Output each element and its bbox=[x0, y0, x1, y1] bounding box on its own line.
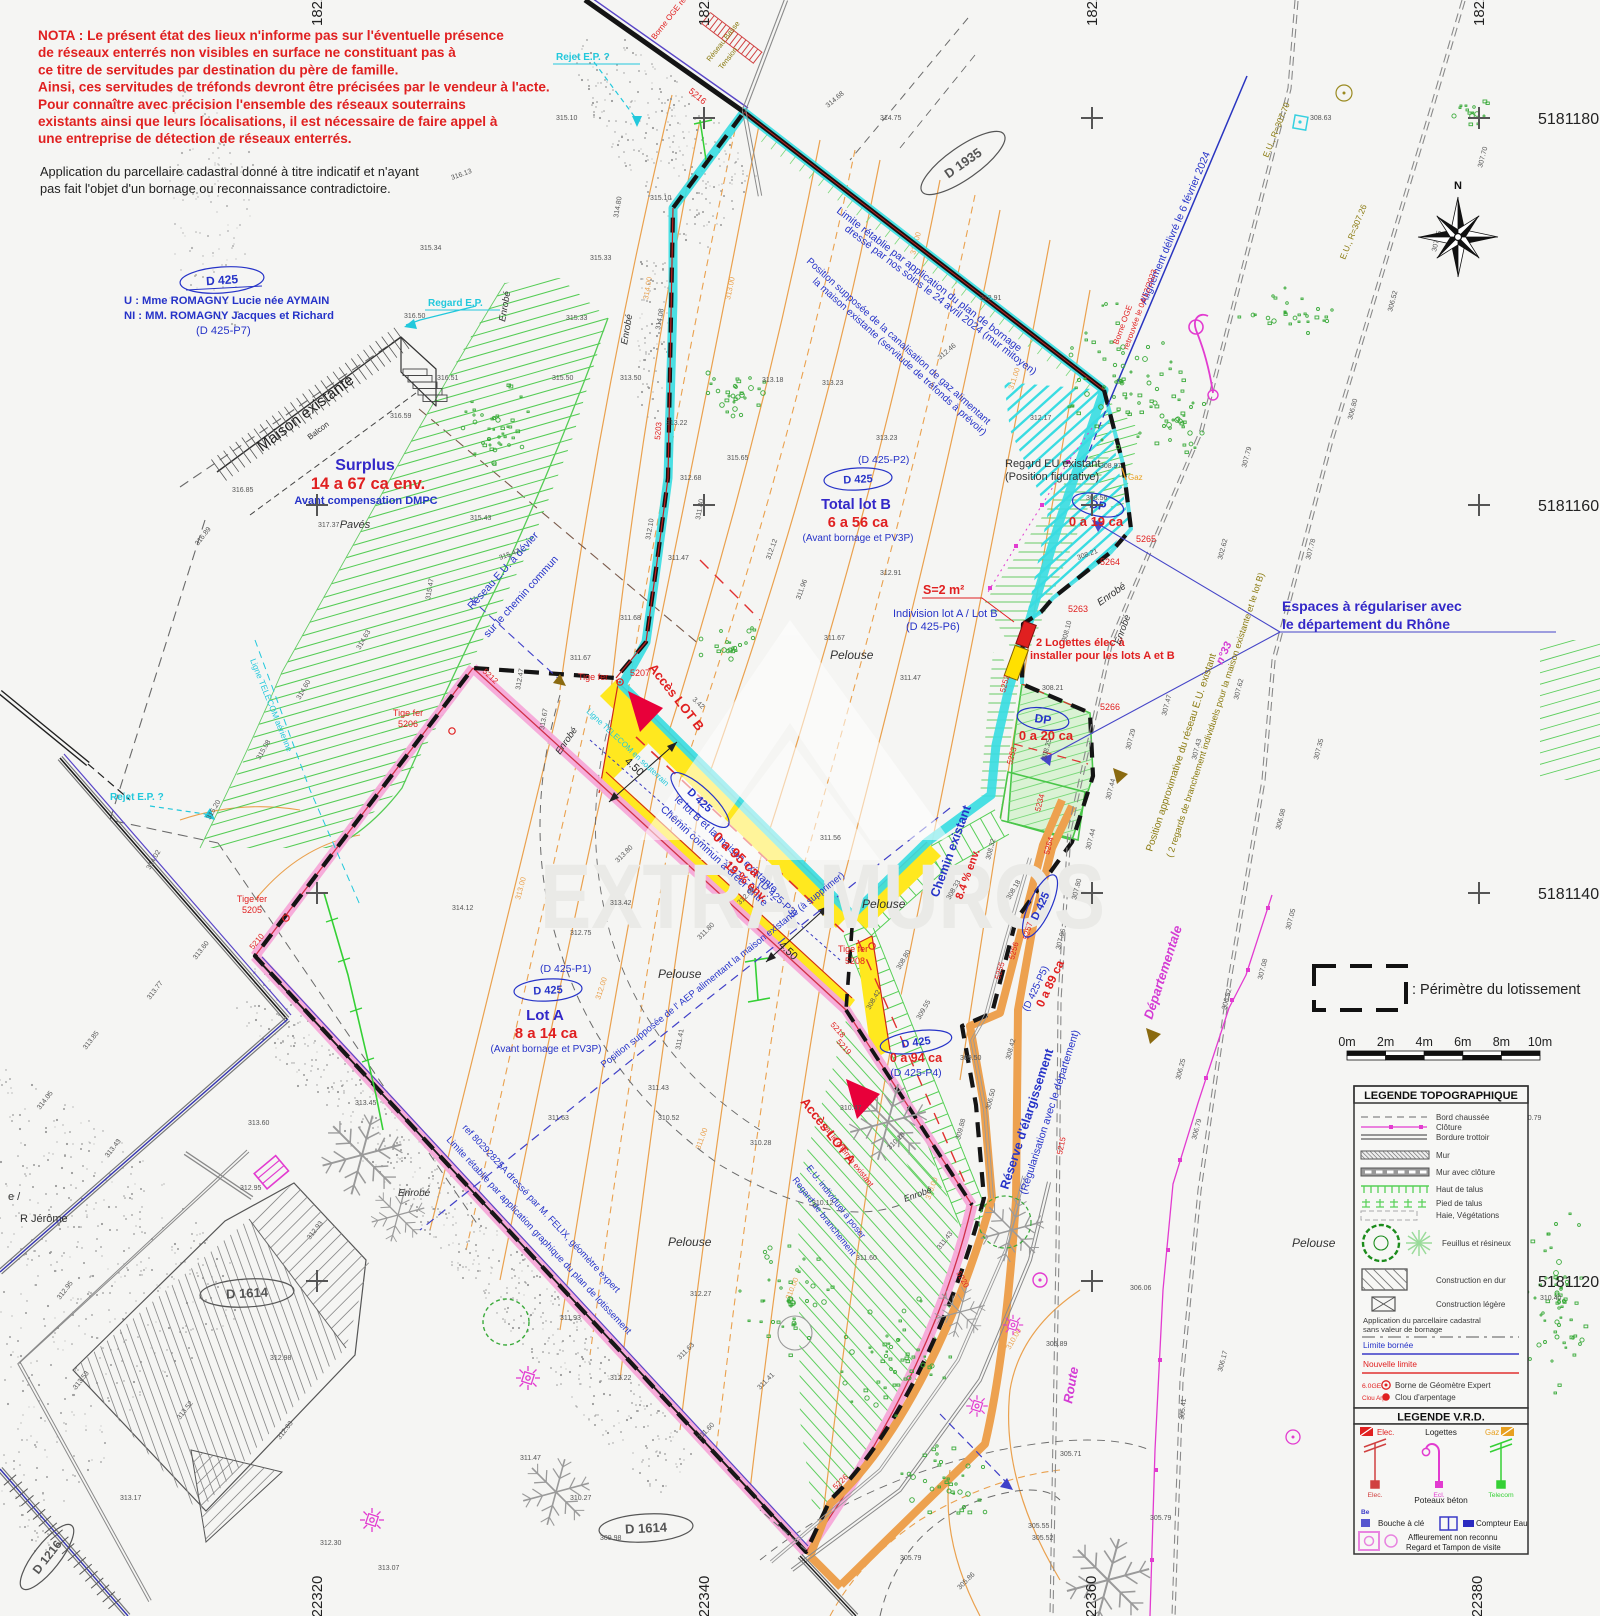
svg-text:315.33: 315.33 bbox=[566, 315, 588, 322]
svg-text:315.50: 315.50 bbox=[552, 375, 574, 382]
svg-text:Tige fer: Tige fer bbox=[237, 894, 267, 904]
svg-text:2m: 2m bbox=[1377, 1035, 1394, 1049]
svg-text:1822380: 1822380 bbox=[1469, 1576, 1486, 1616]
svg-text:Ainsi, ces servitudes de tréfo: Ainsi, ces servitudes de tréfonds devron… bbox=[38, 80, 550, 95]
svg-text:5263: 5263 bbox=[1068, 604, 1088, 614]
svg-text:312.22: 312.22 bbox=[610, 1375, 632, 1382]
svg-text:317.37: 317.37 bbox=[318, 522, 340, 529]
svg-text:existants ainsi que leurs loca: existants ainsi que leurs localisations,… bbox=[38, 114, 498, 129]
svg-text:6.0GE: 6.0GE bbox=[1362, 1383, 1382, 1390]
svg-text:305.52: 305.52 bbox=[1032, 1535, 1054, 1542]
svg-text:Clôture: Clôture bbox=[1436, 1123, 1462, 1132]
svg-text:NOTA : Le présent état des lie: NOTA : Le présent état des lieux n'infor… bbox=[38, 28, 504, 43]
svg-text:0 a 94 ca: 0 a 94 ca bbox=[890, 1051, 943, 1065]
svg-text:Surplus: Surplus bbox=[335, 457, 395, 474]
svg-text:1822340: 1822340 bbox=[696, 1576, 713, 1616]
svg-text:(Avant bornage et PV3P): (Avant bornage et PV3P) bbox=[803, 533, 914, 544]
svg-text:Clou d'arpentage: Clou d'arpentage bbox=[1395, 1393, 1456, 1402]
svg-text:312.95: 312.95 bbox=[240, 1185, 262, 1192]
svg-text:N: N bbox=[1454, 180, 1462, 192]
svg-text:313.07: 313.07 bbox=[378, 1565, 400, 1572]
svg-text:(D 425-P7): (D 425-P7) bbox=[196, 325, 251, 337]
svg-text:306.06: 306.06 bbox=[1130, 1285, 1152, 1292]
svg-text:1822340: 1822340 bbox=[696, 0, 713, 26]
svg-text:Borne de Géomètre Expert: Borne de Géomètre Expert bbox=[1395, 1381, 1491, 1390]
svg-text:309.50: 309.50 bbox=[960, 1055, 982, 1062]
svg-text:5205: 5205 bbox=[242, 905, 262, 915]
svg-text:Gaz: Gaz bbox=[1485, 1428, 1499, 1437]
svg-text:Feuillus et résineux: Feuillus et résineux bbox=[1442, 1239, 1511, 1248]
svg-text:Lot A: Lot A bbox=[526, 1007, 564, 1024]
svg-text:312.27: 312.27 bbox=[690, 1291, 712, 1298]
svg-text:5207: 5207 bbox=[630, 668, 650, 678]
svg-text:de réseaux enterrés non visibl: de réseaux enterrés non visibles en surf… bbox=[38, 45, 456, 60]
svg-text:Compteur Eau: Compteur Eau bbox=[1476, 1519, 1528, 1528]
svg-text:1822380: 1822380 bbox=[1471, 0, 1488, 26]
svg-text:Espaces à régulariser avec: Espaces à régulariser avec bbox=[1282, 598, 1462, 614]
svg-text:311.47: 311.47 bbox=[668, 555, 689, 562]
svg-text:5181160: 5181160 bbox=[1538, 498, 1599, 515]
svg-text:8 a 14 ca: 8 a 14 ca bbox=[515, 1025, 578, 1042]
svg-text:311.56: 311.56 bbox=[820, 835, 841, 842]
svg-text:NI : MM. ROMAGNY Jacques et Ri: NI : MM. ROMAGNY Jacques et Richard bbox=[124, 310, 334, 322]
svg-text:0m: 0m bbox=[1338, 1035, 1355, 1049]
svg-text:Logettes: Logettes bbox=[1425, 1427, 1457, 1437]
svg-text:312.98: 312.98 bbox=[270, 1355, 292, 1362]
svg-text:5181140: 5181140 bbox=[1538, 886, 1599, 903]
svg-text:D 1614: D 1614 bbox=[625, 1519, 668, 1536]
svg-text:D 425: D 425 bbox=[206, 272, 239, 288]
svg-text:5265: 5265 bbox=[1136, 534, 1156, 544]
svg-text:Telecom: Telecom bbox=[1488, 1492, 1514, 1499]
svg-text:Bord chaussée: Bord chaussée bbox=[1436, 1113, 1490, 1122]
svg-text:Pour connaître avec précision: Pour connaître avec précision l'ensemble… bbox=[38, 97, 466, 112]
svg-text:Enrobé: Enrobé bbox=[398, 1188, 431, 1199]
svg-text:Haut de talus: Haut de talus bbox=[1436, 1185, 1483, 1194]
svg-text:311.68: 311.68 bbox=[620, 615, 641, 622]
svg-text:308.56: 308.56 bbox=[1086, 495, 1108, 502]
svg-text:Tige fer: Tige fer bbox=[578, 672, 608, 682]
svg-text:5203: 5203 bbox=[653, 421, 664, 440]
svg-text:(D 425-P2): (D 425-P2) bbox=[858, 454, 909, 466]
svg-text:(Avant bornage et PV3P): (Avant bornage et PV3P) bbox=[491, 1044, 602, 1055]
svg-text:1822360: 1822360 bbox=[1084, 0, 1101, 26]
svg-text:4m: 4m bbox=[1416, 1035, 1433, 1049]
svg-text:1822360: 1822360 bbox=[1083, 1576, 1100, 1616]
svg-text:Pelouse: Pelouse bbox=[1292, 1236, 1336, 1250]
svg-text:305.55: 305.55 bbox=[1028, 1523, 1050, 1530]
svg-text:305.89: 305.89 bbox=[1046, 1341, 1068, 1348]
svg-text:305.71: 305.71 bbox=[1060, 1451, 1082, 1458]
svg-text:Pelouse: Pelouse bbox=[658, 967, 702, 981]
svg-text:1822320: 1822320 bbox=[309, 0, 326, 26]
svg-text:316.85: 316.85 bbox=[232, 487, 254, 494]
svg-text:U : Mme ROMAGNY Lucie née AYMA: U : Mme ROMAGNY Lucie née AYMAIN bbox=[124, 295, 329, 307]
svg-text:Affleurement non reconnu: Affleurement non reconnu bbox=[1408, 1533, 1498, 1542]
svg-text:311.67: 311.67 bbox=[824, 635, 845, 642]
svg-text:310.27: 310.27 bbox=[570, 1495, 592, 1502]
svg-text:10m: 10m bbox=[1528, 1035, 1552, 1049]
svg-text:310.28: 310.28 bbox=[750, 1140, 772, 1147]
svg-text:Gaz: Gaz bbox=[1128, 473, 1143, 482]
svg-text:Total lot B: Total lot B bbox=[821, 497, 891, 513]
svg-text:310.52: 310.52 bbox=[658, 1115, 680, 1122]
svg-text:Rejet E.P. ?: Rejet E.P. ? bbox=[556, 52, 610, 63]
svg-text:Application du parcellaire cad: Application du parcellaire cadastral don… bbox=[40, 164, 419, 179]
svg-text:313.60: 313.60 bbox=[248, 1120, 270, 1127]
svg-text:315.10: 315.10 bbox=[650, 195, 672, 202]
svg-text:ce titre de servitudes par des: ce titre de servitudes par destination d… bbox=[38, 62, 398, 77]
svg-text:8m: 8m bbox=[1493, 1035, 1510, 1049]
svg-text:(D 425-P6): (D 425-P6) bbox=[906, 621, 960, 633]
svg-text:313.45: 313.45 bbox=[355, 1100, 377, 1107]
svg-text:5206: 5206 bbox=[398, 719, 418, 729]
svg-text:310.12: 310.12 bbox=[812, 1200, 834, 1207]
svg-text:310.40: 310.40 bbox=[1540, 1295, 1562, 1302]
svg-text:Construction légère: Construction légère bbox=[1436, 1300, 1506, 1309]
svg-text:5181120: 5181120 bbox=[1538, 1274, 1599, 1291]
svg-text:311.47: 311.47 bbox=[900, 675, 921, 682]
svg-text:sans valeur de bornage: sans valeur de bornage bbox=[1363, 1325, 1442, 1334]
svg-text:313.23: 313.23 bbox=[822, 380, 844, 387]
svg-text:LEGENDE TOPOGRAPHIQUE: LEGENDE TOPOGRAPHIQUE bbox=[1364, 1090, 1518, 1102]
svg-text:313.17: 313.17 bbox=[120, 1495, 142, 1502]
svg-text:313.42: 313.42 bbox=[610, 900, 632, 907]
svg-text:312.68: 312.68 bbox=[680, 475, 702, 482]
svg-text:312.91: 312.91 bbox=[980, 295, 1002, 302]
svg-text:316.51: 316.51 bbox=[437, 375, 459, 382]
svg-text:311.47: 311.47 bbox=[520, 1455, 541, 1462]
svg-text:(D 425-P4): (D 425-P4) bbox=[890, 1067, 941, 1079]
svg-text:311.43: 311.43 bbox=[648, 1085, 669, 1092]
svg-text:: Périmètre du lotissement: : Périmètre du lotissement bbox=[1412, 982, 1580, 998]
svg-text:315.43: 315.43 bbox=[470, 515, 492, 522]
svg-text:0 a 19 ca: 0 a 19 ca bbox=[1069, 514, 1124, 529]
svg-text:une entreprise de détection de: une entreprise de détection de réseaux e… bbox=[38, 131, 352, 146]
svg-text:311.93: 311.93 bbox=[560, 1315, 581, 1322]
svg-text:316.59: 316.59 bbox=[390, 413, 412, 420]
svg-text:305.79: 305.79 bbox=[900, 1555, 922, 1562]
svg-text:Pelouse: Pelouse bbox=[862, 897, 906, 911]
svg-text:311.63: 311.63 bbox=[548, 1115, 569, 1122]
svg-text:5264: 5264 bbox=[1100, 557, 1120, 567]
svg-text:Application du parcellaire cad: Application du parcellaire cadastral bbox=[1363, 1316, 1481, 1325]
svg-text:D 425: D 425 bbox=[843, 473, 873, 487]
svg-text:Pavés: Pavés bbox=[340, 519, 371, 531]
svg-text:313.22: 313.22 bbox=[666, 420, 688, 427]
svg-text:5266: 5266 bbox=[1100, 702, 1120, 712]
svg-text:Regard EU existant: Regard EU existant bbox=[1005, 458, 1100, 470]
svg-text:Bordure trottoir: Bordure trottoir bbox=[1436, 1133, 1490, 1142]
svg-text:(D 425-P1): (D 425-P1) bbox=[540, 963, 591, 975]
svg-text:R Jérôme: R Jérôme bbox=[20, 1213, 68, 1225]
svg-text:Tige fer: Tige fer bbox=[838, 944, 868, 954]
svg-text:310.47: 310.47 bbox=[840, 1105, 862, 1112]
svg-text:315.10: 315.10 bbox=[556, 115, 578, 122]
svg-text:Nouvelle limite: Nouvelle limite bbox=[1363, 1359, 1417, 1369]
svg-text:6 a 56 ca: 6 a 56 ca bbox=[828, 515, 889, 531]
svg-text:312.17: 312.17 bbox=[1030, 415, 1052, 422]
svg-text:314.12: 314.12 bbox=[452, 905, 474, 912]
svg-text:313.23: 313.23 bbox=[876, 435, 898, 442]
svg-text:Mur: Mur bbox=[1436, 1151, 1450, 1160]
svg-text:S=2 m²: S=2 m² bbox=[923, 583, 964, 597]
svg-text:313.18: 313.18 bbox=[762, 377, 784, 384]
svg-text:LEGENDE V.R.D.: LEGENDE V.R.D. bbox=[1397, 1412, 1485, 1424]
svg-text:316.50: 316.50 bbox=[404, 313, 426, 320]
svg-text:installer pour les lots A et B: installer pour les lots A et B bbox=[1030, 650, 1175, 662]
svg-text:Elec.: Elec. bbox=[1377, 1428, 1394, 1437]
svg-text:308.21: 308.21 bbox=[1042, 685, 1064, 692]
svg-text:Poteaux béton: Poteaux béton bbox=[1414, 1495, 1468, 1505]
svg-text:308.63: 308.63 bbox=[1310, 115, 1332, 122]
svg-text:5181180: 5181180 bbox=[1538, 111, 1599, 128]
svg-text:6m: 6m bbox=[1454, 1035, 1471, 1049]
svg-text:313.50: 313.50 bbox=[620, 375, 642, 382]
svg-text:Haie, Végétations: Haie, Végétations bbox=[1436, 1211, 1499, 1220]
svg-text:Elec.: Elec. bbox=[1367, 1492, 1382, 1499]
svg-text:315.65: 315.65 bbox=[727, 455, 749, 462]
svg-text:D 425: D 425 bbox=[533, 984, 563, 998]
svg-text:le département du Rhône: le département du Rhône bbox=[1282, 616, 1450, 632]
svg-text:308.97: 308.97 bbox=[1100, 463, 1122, 470]
svg-text:Tige fer: Tige fer bbox=[393, 708, 423, 718]
svg-text:14 a 67 ca env.: 14 a 67 ca env. bbox=[311, 475, 425, 493]
svg-text:1822320: 1822320 bbox=[309, 1576, 326, 1616]
svg-text:Regard E.P.: Regard E.P. bbox=[428, 298, 483, 309]
svg-text:D 1614: D 1614 bbox=[226, 1284, 269, 1301]
svg-text:5208: 5208 bbox=[845, 956, 865, 966]
svg-text:Pied de talus: Pied de talus bbox=[1436, 1199, 1482, 1208]
svg-text:e /: e / bbox=[8, 1191, 21, 1203]
svg-text:Regard et Tampon de visite: Regard et Tampon de visite bbox=[1406, 1543, 1501, 1552]
svg-text:Limite bornée: Limite bornée bbox=[1363, 1340, 1414, 1350]
svg-text:Bouche à clé: Bouche à clé bbox=[1378, 1519, 1425, 1528]
svg-text:305.79: 305.79 bbox=[1150, 1515, 1172, 1522]
svg-text:312.75: 312.75 bbox=[570, 930, 592, 937]
svg-text:315.33: 315.33 bbox=[590, 255, 612, 262]
svg-text:309.98: 309.98 bbox=[600, 1535, 622, 1542]
svg-text:Rejet E.P. ?: Rejet E.P. ? bbox=[110, 792, 164, 803]
svg-text:314.75: 314.75 bbox=[880, 115, 902, 122]
svg-text:315.34: 315.34 bbox=[420, 245, 442, 252]
svg-text:(Position figurative): (Position figurative) bbox=[1005, 471, 1099, 483]
svg-text:Indivision lot A / Lot B: Indivision lot A / Lot B bbox=[893, 608, 998, 620]
svg-text:Be: Be bbox=[1361, 1509, 1370, 1516]
svg-text:DP: DP bbox=[1034, 711, 1052, 727]
svg-text:Construction en dur: Construction en dur bbox=[1436, 1276, 1506, 1285]
svg-text:311.67: 311.67 bbox=[570, 655, 591, 662]
svg-text:Mur avec clôture: Mur avec clôture bbox=[1436, 1168, 1496, 1177]
svg-text:Pelouse: Pelouse bbox=[830, 648, 874, 662]
svg-text:312.30: 312.30 bbox=[320, 1540, 342, 1547]
svg-text:Pelouse: Pelouse bbox=[668, 1235, 712, 1249]
svg-text:312.91: 312.91 bbox=[880, 570, 902, 577]
svg-text:pas fait l'objet d'un bornage: pas fait l'objet d'un bornage ou reconna… bbox=[40, 181, 391, 196]
svg-text:311.60: 311.60 bbox=[856, 1255, 877, 1262]
